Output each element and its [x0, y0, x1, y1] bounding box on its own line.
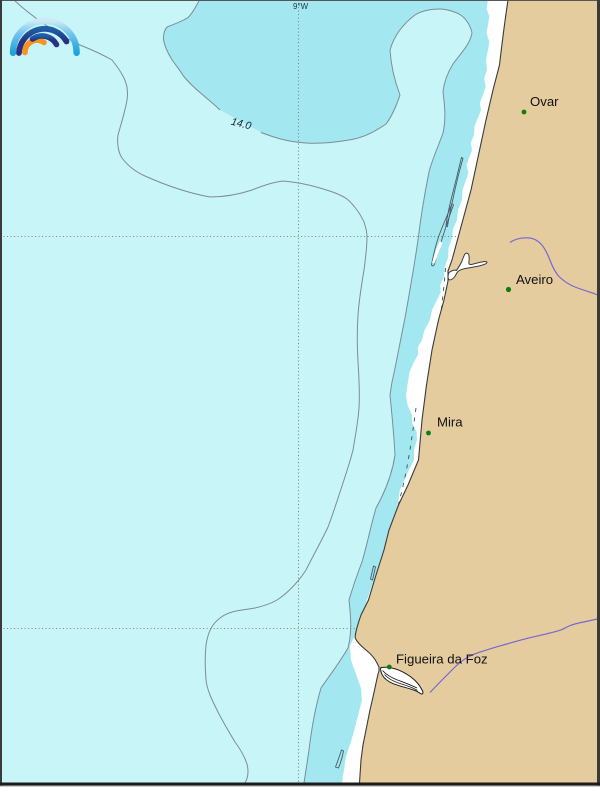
svg-text:Figueira da Foz: Figueira da Foz [396, 652, 488, 667]
svg-text:Mira: Mira [437, 415, 463, 430]
svg-text:Ovar: Ovar [530, 94, 559, 109]
svg-text:Aveiro: Aveiro [516, 272, 553, 287]
svg-text:9°W: 9°W [293, 2, 309, 11]
